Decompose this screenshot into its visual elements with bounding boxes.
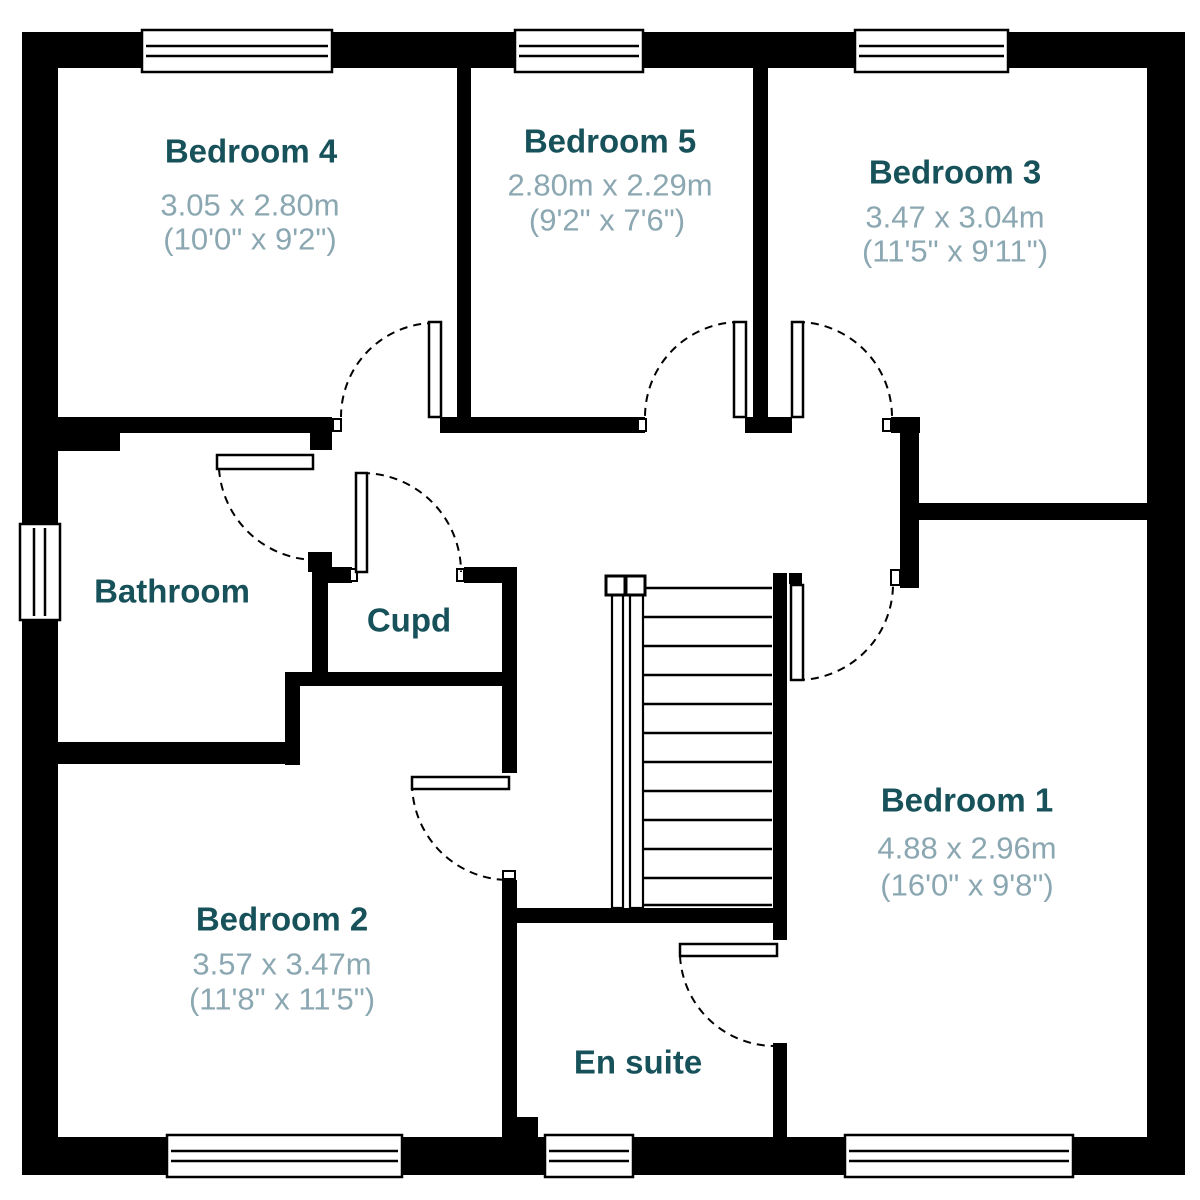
room-label-bedroom1-metric: 4.88 x 2.96m <box>877 833 1056 864</box>
floor-plan: Bedroom 4 3.05 x 2.80m (10'0" x 9'2") Be… <box>0 0 1200 1200</box>
window-bedroom3 <box>855 30 1008 72</box>
room-label-bedroom3-imperial: (11'5" x 9'11") <box>862 236 1048 267</box>
room-label-bedroom2-name: Bedroom 2 <box>196 903 368 936</box>
room-label-bedroom3-metric: 3.47 x 3.04m <box>865 202 1044 233</box>
door-bedroom5 <box>638 322 746 431</box>
window-bedroom5 <box>515 30 643 72</box>
door-bathroom <box>217 455 318 560</box>
door-bedroom2 <box>412 777 515 880</box>
newel-post <box>626 576 645 595</box>
window-bedroom4 <box>142 30 332 72</box>
window-bedroom1 <box>845 1135 1073 1177</box>
newel-post <box>606 576 625 595</box>
room-label-bathroom: Bathroom <box>94 575 250 608</box>
door-cupboard <box>350 473 464 581</box>
room-label-bedroom2-metric: 3.57 x 3.47m <box>192 949 371 980</box>
room-label-ensuite: En suite <box>574 1046 702 1079</box>
door-bedroom3 <box>792 322 892 431</box>
room-label-cupboard: Cupd <box>367 604 451 637</box>
room-label-bedroom1-imperial: (16'0" x 9'8") <box>880 870 1053 901</box>
room-label-bedroom4-name: Bedroom 4 <box>165 135 337 168</box>
door-bedroom4 <box>333 322 441 431</box>
room-label-bedroom1-name: Bedroom 1 <box>881 784 1053 817</box>
room-label-bedroom5-imperial: (9'2" x 7'6") <box>529 205 685 236</box>
room-label-bedroom5-metric: 2.80m x 2.29m <box>507 170 712 201</box>
window-bedroom2 <box>167 1135 402 1177</box>
window-bathroom <box>20 524 60 620</box>
room-label-bedroom5-name: Bedroom 5 <box>524 125 696 158</box>
door-bedroom1 <box>791 570 900 680</box>
room-label-bedroom4-imperial: (10'0" x 9'2") <box>163 224 336 255</box>
staircase <box>606 576 772 908</box>
stair-banister <box>612 582 623 908</box>
room-label-bedroom2-imperial: (11'8" x 11'5") <box>189 984 375 1015</box>
room-label-bedroom3-name: Bedroom 3 <box>869 156 1041 189</box>
room-label-bedroom4-metric: 3.05 x 2.80m <box>160 190 339 221</box>
window-ensuite <box>545 1135 633 1177</box>
door-ensuite <box>680 944 777 1046</box>
